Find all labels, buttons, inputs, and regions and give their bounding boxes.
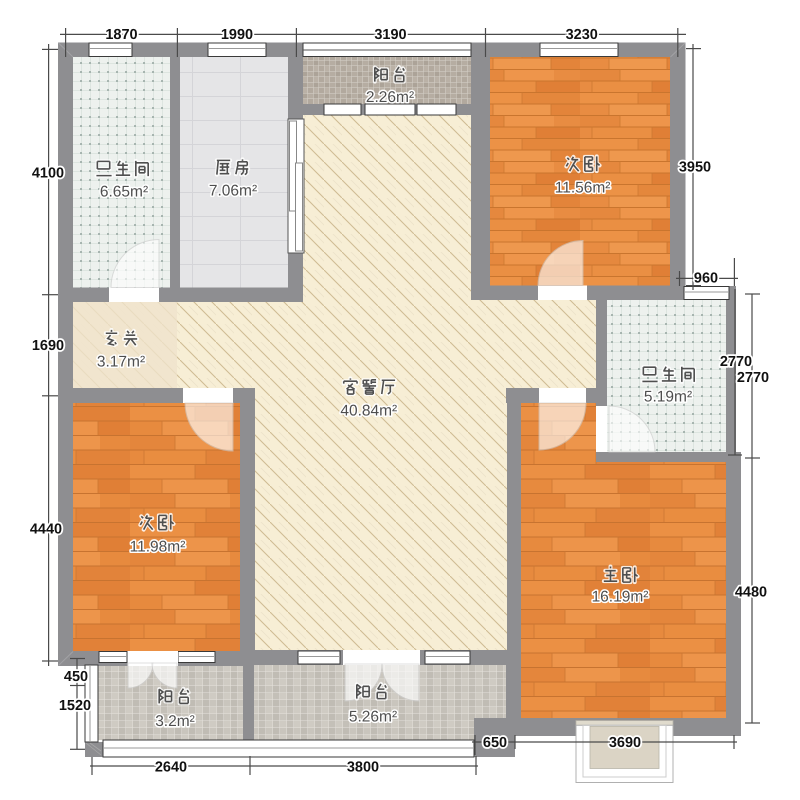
svg-text:3.17m²: 3.17m² — [97, 354, 145, 371]
svg-text:3950: 3950 — [679, 160, 711, 176]
svg-text:960: 960 — [694, 271, 718, 287]
svg-text:3230: 3230 — [566, 27, 598, 43]
svg-text:4100: 4100 — [32, 166, 64, 182]
svg-text:2770: 2770 — [720, 354, 752, 370]
svg-text:650: 650 — [483, 735, 507, 751]
svg-text:3800: 3800 — [347, 760, 379, 776]
svg-text:3190: 3190 — [374, 27, 406, 43]
svg-text:3.2m²: 3.2m² — [155, 713, 195, 730]
svg-text:6.65m²: 6.65m² — [100, 184, 148, 201]
svg-text:5.19m²: 5.19m² — [644, 389, 692, 406]
svg-text:4480: 4480 — [735, 585, 767, 601]
svg-text:5.26m²: 5.26m² — [349, 709, 397, 726]
svg-text:2.26m²: 2.26m² — [366, 89, 414, 106]
svg-text:7.06m²: 7.06m² — [209, 183, 257, 200]
svg-text:1520: 1520 — [59, 698, 91, 714]
svg-text:11.98m²: 11.98m² — [130, 539, 186, 556]
svg-text:4440: 4440 — [30, 522, 62, 538]
svg-text:2640: 2640 — [155, 760, 187, 776]
svg-text:40.84m²: 40.84m² — [340, 403, 397, 420]
svg-text:1690: 1690 — [32, 338, 64, 354]
svg-text:11.56m²: 11.56m² — [555, 179, 611, 196]
svg-text:1870: 1870 — [105, 27, 137, 43]
svg-text:2770: 2770 — [737, 370, 769, 386]
svg-text:1990: 1990 — [221, 27, 253, 43]
svg-text:16.19m²: 16.19m² — [592, 589, 649, 606]
svg-text:3690: 3690 — [609, 735, 641, 751]
svg-text:450: 450 — [64, 669, 88, 685]
